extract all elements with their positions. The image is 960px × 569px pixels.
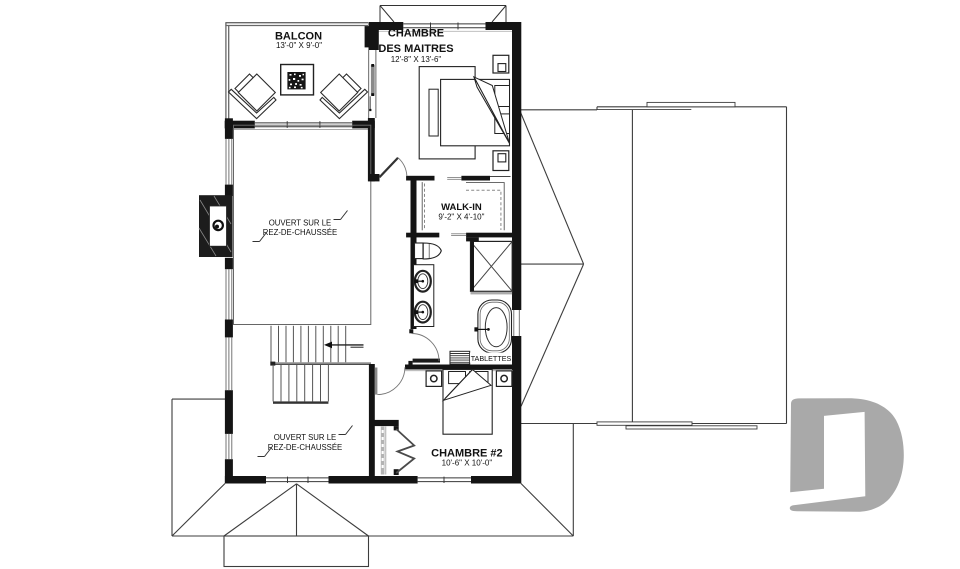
svg-text:OUVERT SUR LE: OUVERT SUR LE bbox=[274, 433, 337, 442]
svg-text:OUVERT SUR LE: OUVERT SUR LE bbox=[269, 219, 332, 228]
svg-text:9'-2" X 4'-10": 9'-2" X 4'-10" bbox=[438, 212, 484, 221]
svg-text:10'-6" X 10'-0": 10'-6" X 10'-0" bbox=[442, 459, 493, 468]
svg-text:TABLETTES: TABLETTES bbox=[471, 354, 512, 363]
svg-text:12'-8" X 13'-6": 12'-8" X 13'-6" bbox=[391, 55, 442, 64]
svg-text:DES MAITRES: DES MAITRES bbox=[378, 43, 453, 55]
svg-text:CHAMBRE: CHAMBRE bbox=[388, 28, 444, 40]
svg-text:REZ-DE-CHAUSSÉE: REZ-DE-CHAUSSÉE bbox=[263, 228, 338, 237]
svg-text:REZ-DE-CHAUSSÉE: REZ-DE-CHAUSSÉE bbox=[268, 443, 343, 452]
svg-text:13'-0" X 9'-0": 13'-0" X 9'-0" bbox=[276, 41, 322, 50]
